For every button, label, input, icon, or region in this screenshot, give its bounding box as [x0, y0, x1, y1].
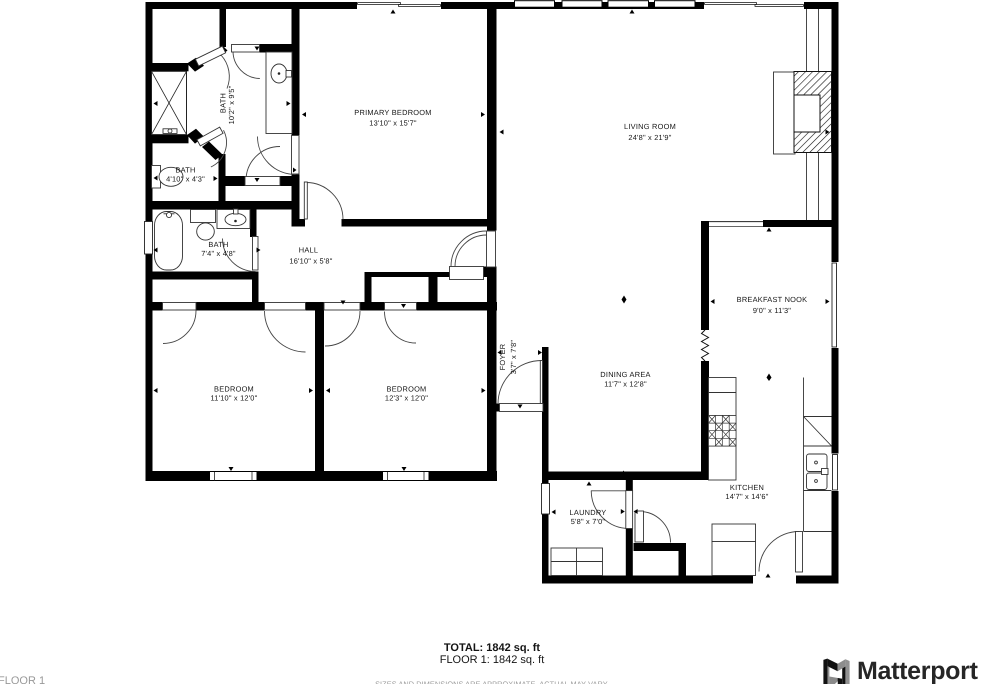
- svg-text:KITCHEN: KITCHEN: [730, 483, 764, 492]
- svg-text:BATH: BATH: [208, 240, 228, 249]
- svg-text:HALL: HALL: [299, 246, 319, 255]
- svg-text:14'7" x 14'6": 14'7" x 14'6": [725, 492, 768, 501]
- svg-text:3'7" x 7'8": 3'7" x 7'8": [509, 340, 518, 375]
- svg-text:10'2" x 9'5": 10'2" x 9'5": [227, 85, 236, 124]
- svg-text:BREAKFAST NOOK: BREAKFAST NOOK: [737, 295, 808, 304]
- svg-text:7'4" x 4'8": 7'4" x 4'8": [201, 249, 236, 258]
- svg-text:16'10" x 5'8": 16'10" x 5'8": [289, 257, 332, 266]
- svg-text:BEDROOM: BEDROOM: [387, 385, 427, 394]
- svg-text:Matterport: Matterport: [857, 657, 979, 684]
- svg-text:12'3" x 12'0": 12'3" x 12'0": [385, 394, 428, 403]
- svg-text:SIZES AND DIMENSIONS ARE APPRO: SIZES AND DIMENSIONS ARE APPROXIMATE. AC…: [375, 680, 609, 684]
- svg-text:5'8" x 7'0": 5'8" x 7'0": [571, 517, 606, 526]
- svg-text:LIVING ROOM: LIVING ROOM: [624, 122, 676, 131]
- svg-text:24'8" x 21'9": 24'8" x 21'9": [628, 133, 671, 142]
- svg-text:BATH: BATH: [175, 166, 195, 175]
- svg-text:TOTAL: 1842 sq. ft: TOTAL: 1842 sq. ft: [444, 642, 541, 654]
- svg-text:FLOOR 1: 1842 sq. ft: FLOOR 1: 1842 sq. ft: [440, 654, 545, 666]
- svg-text:BEDROOM: BEDROOM: [214, 385, 254, 394]
- svg-text:FLOOR 1: FLOOR 1: [0, 675, 45, 684]
- svg-text:11'10" x 12'0": 11'10" x 12'0": [211, 394, 258, 403]
- svg-text:13'10" x 15'7": 13'10" x 15'7": [369, 119, 417, 128]
- svg-text:LAUNDRY: LAUNDRY: [570, 508, 607, 517]
- svg-text:FOYER: FOYER: [498, 344, 507, 371]
- svg-text:4'10" x 4'3": 4'10" x 4'3": [166, 175, 205, 184]
- svg-text:DINING AREA: DINING AREA: [600, 370, 650, 379]
- svg-text:11'7" x 12'8": 11'7" x 12'8": [604, 380, 647, 389]
- svg-text:PRIMARY BEDROOM: PRIMARY BEDROOM: [354, 108, 431, 117]
- svg-text:9'0" x 11'3": 9'0" x 11'3": [753, 306, 791, 315]
